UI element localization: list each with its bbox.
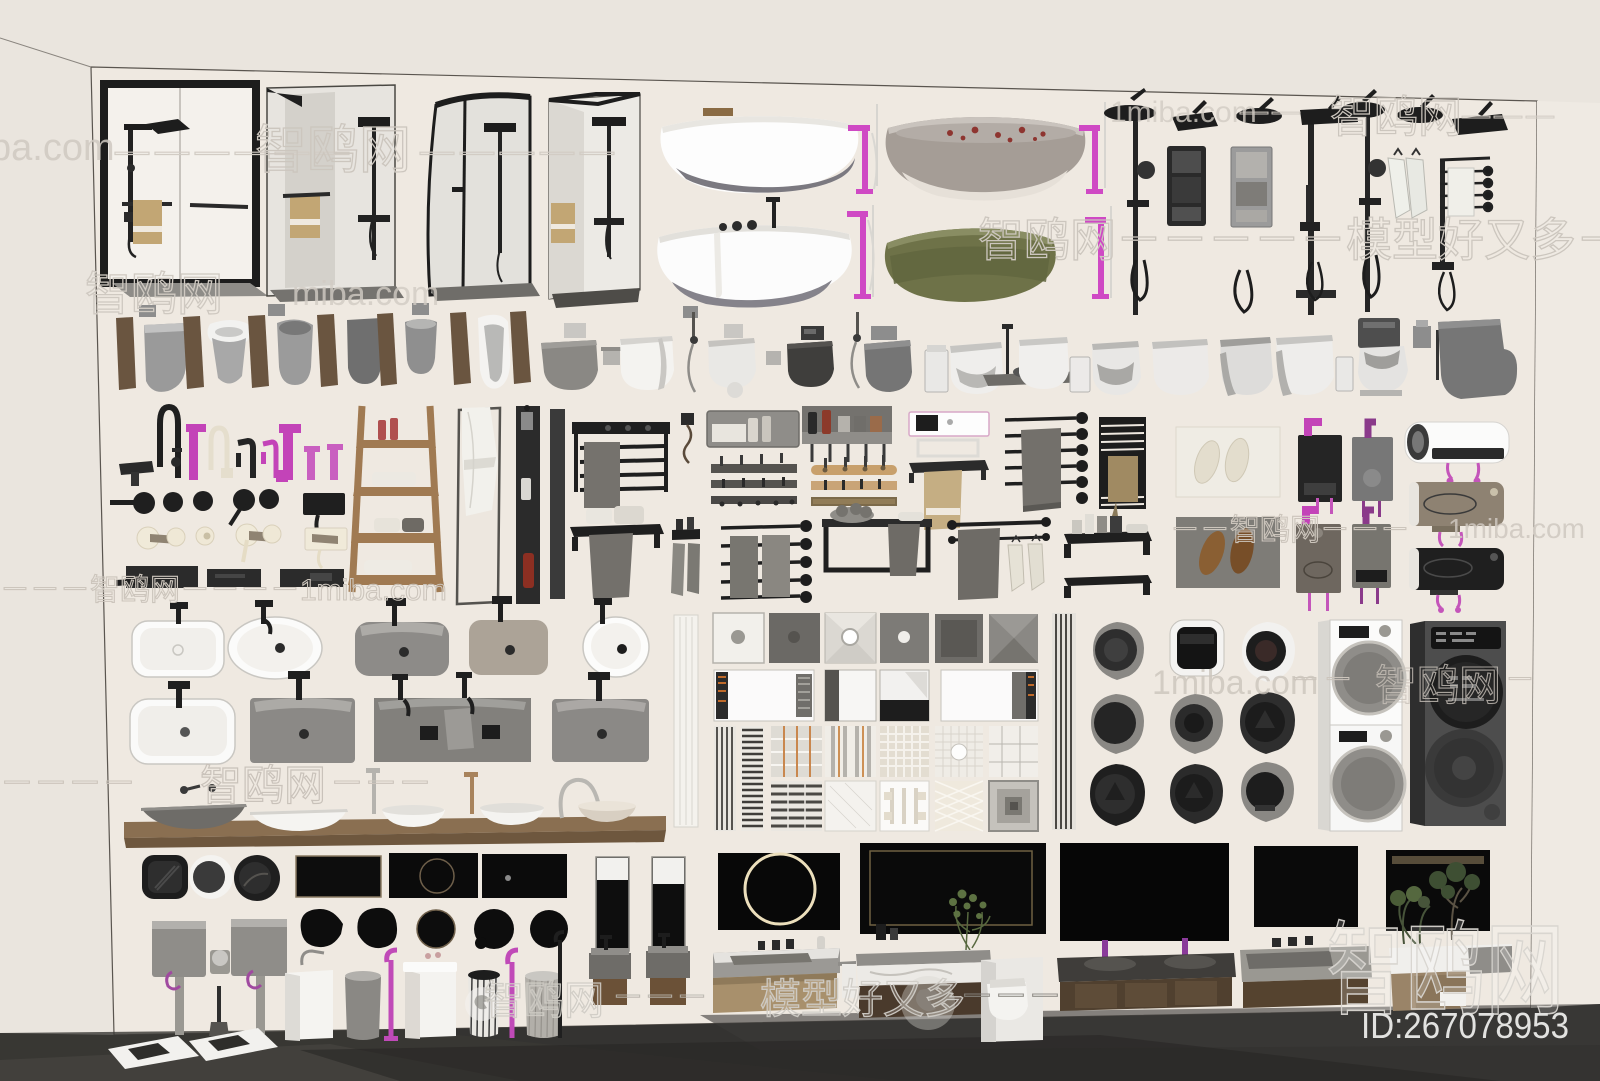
- svg-text:－: －: [1505, 664, 1535, 697]
- svg-text:－－智鸥网－－－: －－智鸥网－－－: [1170, 514, 1410, 547]
- svg-text:1miba.com: 1miba.com: [1110, 96, 1257, 129]
- svg-text:－－－智鸥网－－－－1miba.com: －－－智鸥网－－－－1miba.com: [0, 574, 447, 607]
- svg-text:1miba.com: 1miba.com: [1448, 513, 1585, 544]
- svg-text:－－－: －－－: [612, 979, 708, 1015]
- svg-text:模型好又多: 模型好又多: [760, 976, 965, 1022]
- svg-text:－－－: －－－: [960, 978, 1062, 1016]
- svg-text:ID:267078953: ID:267078953: [1361, 1005, 1569, 1046]
- svg-text:——: ——: [1240, 95, 1304, 126]
- svg-text:智鸥网: 智鸥网: [85, 268, 223, 320]
- svg-text:－－－: －－－: [330, 765, 432, 803]
- svg-text:miba.com: miba.com: [292, 275, 439, 313]
- svg-text:－－: －－: [1290, 664, 1356, 697]
- svg-text:智鸥网: 智鸥网: [255, 122, 411, 180]
- svg-text:—————: —————: [420, 132, 620, 170]
- svg-text:智鸥网: 智鸥网: [200, 762, 326, 809]
- svg-text:智鸥网: 智鸥网: [1330, 93, 1462, 142]
- svg-text:ba.com: ba.com: [0, 127, 115, 169]
- svg-text:———: ———: [1462, 99, 1558, 130]
- svg-text:智鸥网: 智鸥网: [484, 979, 604, 1023]
- svg-text:智鸥网－－－－－模型好又多－: 智鸥网－－－－－模型好又多－: [978, 214, 1600, 266]
- svg-text:－－－－: －－－－: [0, 765, 136, 803]
- svg-text:智鸥网: 智鸥网: [1375, 662, 1501, 709]
